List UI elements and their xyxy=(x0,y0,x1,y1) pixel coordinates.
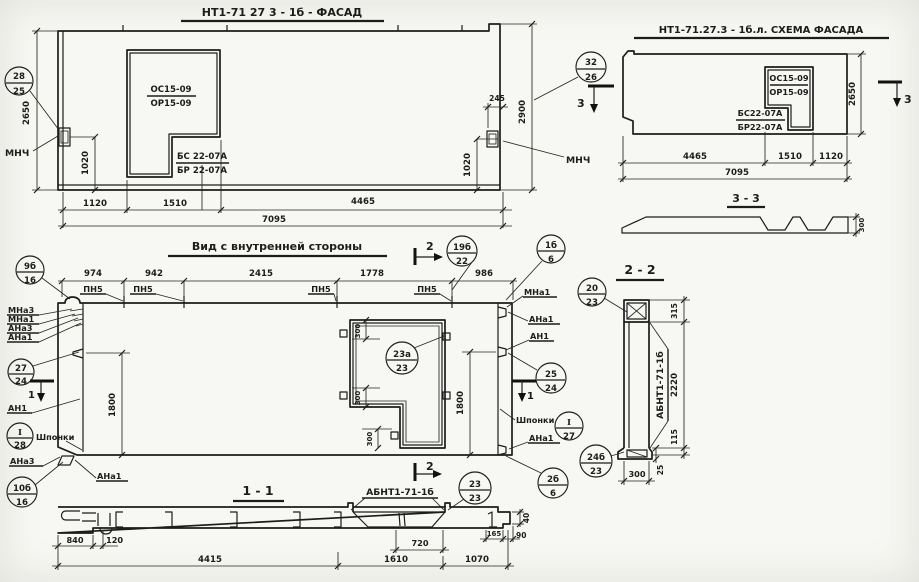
dim-1610: 1610 xyxy=(384,555,408,565)
callout-28-25-top: 28 xyxy=(13,72,25,82)
inner-dim-942: 942 xyxy=(145,269,163,279)
callout-28-25-bot: 25 xyxy=(13,87,25,97)
facade-dim-1120: 1120 xyxy=(83,199,107,209)
schema-bottom-dims: 4465 1510 1120 7095 xyxy=(618,132,852,182)
callout-28-25: 28 25 xyxy=(5,67,59,130)
dim-40: 40 xyxy=(522,513,531,523)
section-1-1: 1 - 1 840 120 720 xyxy=(52,472,531,570)
callout-32-26-top: 32 xyxy=(585,58,597,68)
section-1-1-title: 1 - 1 xyxy=(242,483,273,498)
callout-25-24: 25 24 xyxy=(508,353,566,394)
label-an1-left: АН1 xyxy=(8,403,27,413)
inner-key-right-top xyxy=(498,307,506,318)
inner-dim-2415: 2415 xyxy=(249,269,273,279)
callout-32-26: 32 26 xyxy=(534,52,606,100)
dim-4415: 4415 xyxy=(198,555,222,565)
callout-2b-6-bot: 6 xyxy=(550,489,556,499)
dim-300-s22: 300 xyxy=(628,469,645,479)
schema-window-mark-top-den: ОР15-09 xyxy=(769,87,808,97)
inner-key-right-mid xyxy=(498,347,506,357)
callout-10b-16: 10б 16 xyxy=(7,462,63,508)
dim-120: 120 xyxy=(106,535,123,545)
facade-panel-outline xyxy=(58,24,500,190)
callout-27-24-bot: 24 xyxy=(15,377,27,387)
facade-dim-1020l: 1020 xyxy=(81,151,91,175)
section-2-2-element xyxy=(618,300,652,459)
facade-window-mark-bot-num: БС 22-07А xyxy=(177,152,227,162)
facade-title: НТ1-71 27 3 - 1б - ФАСАД xyxy=(202,6,363,19)
label-ana1-right-lower: АНа1 xyxy=(529,433,554,443)
section-2-label-top: 2 xyxy=(426,240,434,253)
abnt-label-bottom: АБНТ1-71-1б xyxy=(366,487,434,498)
callout-I-28-top: I xyxy=(18,428,22,438)
section-2-2: 2 - 2 20 23 АБНТ1-71-1б xyxy=(578,262,690,485)
dim-115: 115 xyxy=(670,429,679,445)
drawing-sheet: НТ1-71 27 3 - 1б - ФАСАД ОС15-09 ОР15-09… xyxy=(0,0,919,582)
callout-20-23: 20 23 xyxy=(578,278,627,312)
section-1-1-dims-right: 165 90 40 xyxy=(480,509,531,542)
dim-25: 25 xyxy=(656,465,665,475)
callout-2b-6-top: 2б xyxy=(547,474,559,485)
inner-foot-left xyxy=(58,447,77,465)
facade-window-mark-top-den: ОР15-09 xyxy=(150,99,191,109)
callout-20-23-top: 20 xyxy=(586,284,598,294)
callout-20-23-bot: 23 xyxy=(586,298,598,308)
schema-window-mark-bot-den: БР22-07А xyxy=(738,122,783,132)
facade-dim-2900: 2900 xyxy=(518,100,528,124)
section-2-2-title: 2 - 2 xyxy=(624,262,655,277)
pn5-label-4: ПН5 xyxy=(417,284,437,294)
section-1-arrow-left-icon xyxy=(37,393,45,402)
section-3-mark-left: 3 xyxy=(577,86,614,113)
inner-left-labels: МНа3 МНа1 АНа3 АНа1 xyxy=(7,305,81,342)
section-3-label-right: 3 xyxy=(904,93,912,106)
inner-dim-986: 986 xyxy=(475,269,493,279)
schema-dim-2650: 2650 xyxy=(848,82,858,106)
section-3-label-left: 3 xyxy=(577,97,585,110)
callout-1b-6-bot: 6 xyxy=(548,255,554,265)
section-3-3-title: 3 - 3 xyxy=(732,192,760,205)
inner-title: Вид с внутренней стороны xyxy=(192,240,362,253)
section-1-1-profile xyxy=(58,503,510,533)
section-3-3-dim-300: 300 xyxy=(858,218,866,233)
callout-24b-23-bot: 23 xyxy=(590,467,602,477)
dim-315: 315 xyxy=(670,303,679,319)
facade-dim-245: 245 xyxy=(489,94,505,103)
section-3-mark-right: 3 xyxy=(878,82,912,107)
schema-dim-1510: 1510 xyxy=(778,152,802,162)
inner-key-right-bot xyxy=(498,445,506,455)
facade-lifting-ticks xyxy=(123,25,462,31)
inner-panel xyxy=(58,296,512,465)
inner-view: Вид с внутренней стороны 2 19б 22 1б 6 xyxy=(7,235,583,508)
callout-23-23-top: 23 xyxy=(469,480,481,490)
inner-dim-300a: 300 xyxy=(354,324,362,339)
facade-anchor-left-inner xyxy=(61,131,68,143)
schema-view: НТ1-71.27.3 - 1б.л. СХЕМА ФАСАДА ОС15-09… xyxy=(618,24,912,237)
callout-I-27-top: I xyxy=(567,418,571,428)
inner-dim-300b: 300 xyxy=(354,391,362,406)
callout-23a-23-top: 23а xyxy=(393,350,411,360)
callout-2b-6: 2б 6 xyxy=(506,456,568,499)
callout-23a-23-bot: 23 xyxy=(396,364,408,374)
label-ana1-bottom: АНа1 xyxy=(97,471,122,481)
section-1-mark-right: 1 xyxy=(512,381,536,402)
callout-10b-16-bot: 16 xyxy=(16,498,28,508)
schema-dim-4465: 4465 xyxy=(683,152,707,162)
callout-19b-22-top: 19б xyxy=(453,242,471,253)
section-1-label-right: 1 xyxy=(527,391,534,402)
schema-dim-1120: 1120 xyxy=(819,152,843,162)
schema-window-mark-top-num: ОС15-09 xyxy=(769,73,808,83)
dim-1070: 1070 xyxy=(465,555,489,565)
label-an1-right: АН1 xyxy=(530,331,549,341)
callout-24b-23: 24б 23 xyxy=(580,445,624,477)
facade-dim-2650: 2650 xyxy=(22,101,32,125)
inner-right-labels: МНа1 АНа1 АН1 xyxy=(506,287,560,350)
callout-25-24-top: 25 xyxy=(545,370,557,380)
section-3-3: 3 - 3 300 xyxy=(622,192,866,237)
schema-title: НТ1-71.27.3 - 1б.л. СХЕМА ФАСАДА xyxy=(659,24,864,36)
callout-9b-16-bot: 16 xyxy=(24,276,36,286)
section-2-arrow-bottom-icon xyxy=(433,470,442,478)
abnt-label-rotated: АБНТ1-71-1б xyxy=(655,351,666,419)
label-ana1-left: АНа1 xyxy=(8,332,33,342)
label-shponki-left: Шпонки xyxy=(36,432,75,442)
facade-dim-1510: 1510 xyxy=(163,199,187,209)
dim-840: 840 xyxy=(66,535,83,545)
callout-19b-22-bot: 22 xyxy=(456,257,468,267)
callout-27-24-top: 27 xyxy=(15,364,27,374)
section-3-3-profile xyxy=(622,217,848,233)
inner-window-dims: 300 300 300 xyxy=(352,317,392,451)
callout-23-23: 23 23 xyxy=(448,472,491,510)
section-3-arrow-icon xyxy=(590,104,598,113)
callout-25-24-bot: 24 xyxy=(545,384,557,394)
label-shponki-right: Шпонки xyxy=(516,415,555,425)
callout-9b-16-top: 9б xyxy=(24,261,36,272)
inner-dim-1800l: 1800 xyxy=(108,393,118,417)
inner-dim-1800r: 1800 xyxy=(456,391,466,415)
pn5-label-1: ПН5 xyxy=(83,284,103,294)
inner-top-dims: 974 942 2415 1778 986 xyxy=(58,269,517,307)
section-1-mark-left: 1 xyxy=(28,381,54,402)
callout-1b-6-top: 1б xyxy=(545,240,557,251)
callout-10b-16-top: 10б xyxy=(13,483,31,494)
facade-dim-7095: 7095 xyxy=(262,215,286,225)
dim-165: 165 xyxy=(487,530,502,538)
dim-90: 90 xyxy=(516,531,526,540)
callout-23a-23: 23а 23 xyxy=(386,336,444,374)
callout-24b-23-top: 24б xyxy=(587,452,605,463)
schema-window-mark-bot-num: БС22-07А xyxy=(738,108,783,118)
callout-9b-16: 9б 16 xyxy=(16,256,70,299)
callout-32-26-bot: 26 xyxy=(585,73,597,83)
section-2-mark-top: 2 xyxy=(415,240,443,265)
label-mna1-right: МНа1 xyxy=(524,287,551,297)
schema-dim-7095: 7095 xyxy=(725,168,749,178)
section-1-1-joint xyxy=(353,512,445,527)
section-3-arrow-right-icon xyxy=(893,98,901,107)
inner-pn5-labels: ПН5 ПН5 ПН5 ПН5 xyxy=(80,284,451,301)
section-1-label-left: 1 xyxy=(28,390,35,401)
section-2-2-strip xyxy=(624,322,649,448)
section-1-1-dims-a: 840 120 xyxy=(52,530,123,570)
dim-720: 720 xyxy=(411,538,428,548)
section-2-mark-bottom: 2 xyxy=(415,460,442,481)
facade-mnch-right-label: МНЧ xyxy=(566,155,590,166)
section-1-1-dim-720: 720 xyxy=(390,530,449,553)
pn5-label-3: ПН5 xyxy=(311,284,331,294)
section-2-arrow-top-icon xyxy=(434,253,443,261)
facade-window-mark-top-num: ОС15-09 xyxy=(150,85,191,95)
pn5-label-2: ПН5 xyxy=(133,284,153,294)
label-ana3-bottom: АНа3 xyxy=(10,456,35,466)
section-1-arrow-right-icon xyxy=(518,393,526,402)
inner-dim-300c: 300 xyxy=(366,432,374,447)
inner-dim-974: 974 xyxy=(84,269,102,279)
callout-I-27-bot: 27 xyxy=(563,432,575,442)
callout-I-28: I 28 Шпонки xyxy=(7,423,82,451)
dim-2220: 2220 xyxy=(670,373,680,397)
callout-23-23-bot: 23 xyxy=(469,494,481,504)
section-2-label-bottom: 2 xyxy=(426,460,434,473)
facade-dim-4465: 4465 xyxy=(351,197,375,207)
facade-mnch-left-label: МНЧ xyxy=(5,148,29,159)
inner-dim-1778: 1778 xyxy=(360,269,384,279)
facade-dim-1020r: 1020 xyxy=(463,153,473,177)
facade-view: НТ1-71 27 3 - 1б - ФАСАД ОС15-09 ОР15-09… xyxy=(5,6,614,229)
callout-I-28-bot: 28 xyxy=(14,441,26,451)
panel-drawing-svg: НТ1-71 27 3 - 1б - ФАСАД ОС15-09 ОР15-09… xyxy=(0,0,919,582)
label-ana1-right: АНа1 xyxy=(529,314,554,324)
